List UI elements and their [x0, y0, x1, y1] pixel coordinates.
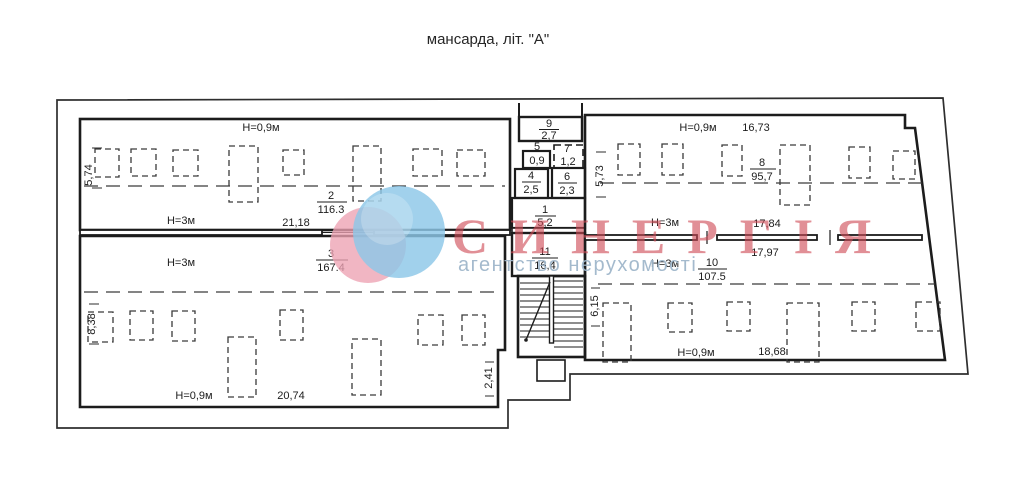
- floor-plan-drawing: мансарда, літ. "А" Н=0,9м Н=0,9м Н=0,9м …: [0, 0, 1024, 484]
- dormer-window: [852, 302, 875, 331]
- dormer-window: [352, 339, 381, 395]
- dimension-21-18: 21,18: [282, 217, 310, 229]
- dimension-6-15: 6,15: [589, 295, 601, 316]
- room-3-walls: [80, 236, 505, 407]
- agency-watermark: СИНЕРГІЯ агентство нерухомості: [330, 186, 893, 283]
- left-divider-wall-a: [80, 230, 322, 235]
- dormer-window: [229, 146, 258, 202]
- height-label-low: Н=0,9м: [677, 347, 714, 359]
- cluster-top-connectors: [519, 103, 582, 117]
- dormer-window: [131, 149, 156, 176]
- dormer-window: [462, 315, 485, 345]
- height-label-low: Н=0,9м: [242, 122, 279, 134]
- room-5-number: 5: [534, 141, 540, 153]
- dormer-window: [95, 149, 119, 177]
- dormer-window: [413, 149, 442, 176]
- dormer-window: [668, 303, 692, 332]
- room-label-6: 6 2,3: [558, 171, 577, 197]
- room-4-number: 4: [528, 170, 534, 182]
- room-6-area: 2,3: [559, 185, 574, 197]
- logo-highlight: [361, 193, 413, 245]
- dormer-window: [727, 302, 750, 331]
- dormer-window: [618, 144, 640, 175]
- room-label-2: 2 116.3: [317, 190, 347, 216]
- dimension-16-73: 16,73: [742, 122, 770, 134]
- dimension-8-38: 8,38: [86, 313, 98, 334]
- dormer-window: [893, 151, 915, 179]
- room-2-area: 116.3: [318, 204, 345, 216]
- dormer-window: [283, 150, 304, 175]
- page-title: мансарда, літ. "А": [427, 31, 550, 48]
- dormer-window: [457, 150, 485, 176]
- dormer-window: [780, 145, 810, 205]
- room-9-number: 9: [546, 118, 552, 130]
- room-6-number: 6: [564, 171, 570, 183]
- dormer-window: [722, 145, 742, 176]
- room-8-number: 8: [759, 157, 765, 169]
- stair-arrow-origin: [524, 338, 528, 342]
- dimension-5-74: 5,74: [83, 164, 95, 185]
- room-7-area: 1,2: [560, 156, 575, 168]
- height-label-low: Н=0,9м: [679, 122, 716, 134]
- floor-plan-page: мансарда, літ. "А" Н=0,9м Н=0,9м Н=0,9м …: [0, 0, 1024, 484]
- dormer-window: [787, 303, 819, 362]
- room-label-9: 9 2,7: [539, 118, 559, 142]
- room-label-7: 7 1,2: [560, 143, 575, 168]
- stair-landing-annex: [537, 360, 565, 381]
- dimension-5-73: 5,73: [594, 165, 606, 186]
- room-label-8: 8 95,7: [750, 157, 776, 183]
- room-8-area: 95,7: [751, 171, 772, 183]
- room-9-area: 2,7: [541, 130, 556, 142]
- height-label-low: Н=0,9м: [175, 390, 212, 402]
- room-7-number: 7: [564, 143, 570, 155]
- height-label-high: Н=3м: [167, 215, 195, 227]
- dimension-18-68: 18,68: [758, 346, 786, 358]
- room-5-area: 0,9: [529, 155, 544, 167]
- dormer-window: [603, 303, 631, 362]
- height-label-high: Н=3м: [167, 257, 195, 269]
- room-10-area: 107.5: [698, 271, 726, 283]
- room-label-5: 5 0,9: [529, 141, 544, 167]
- room-2-number: 2: [328, 190, 334, 202]
- dormer-window: [228, 337, 256, 397]
- stair-treads-right: [554, 281, 583, 347]
- stair-center-divider: [550, 276, 554, 343]
- dormer-window: [173, 150, 198, 176]
- room-label-4: 4 2,5: [522, 170, 541, 196]
- dormer-window: [916, 302, 940, 331]
- dormer-window: [130, 311, 153, 340]
- room-4-area: 2,5: [523, 184, 538, 196]
- dormer-window: [172, 311, 195, 341]
- watermark-tagline-text: агентство нерухомості: [458, 254, 697, 276]
- dimension-20-74: 20,74: [277, 390, 305, 402]
- dimension-2-41: 2,41: [483, 367, 495, 388]
- dormer-window: [662, 144, 683, 175]
- dormer-window: [418, 315, 443, 345]
- dormer-window: [849, 147, 870, 178]
- dormer-window: [280, 310, 303, 340]
